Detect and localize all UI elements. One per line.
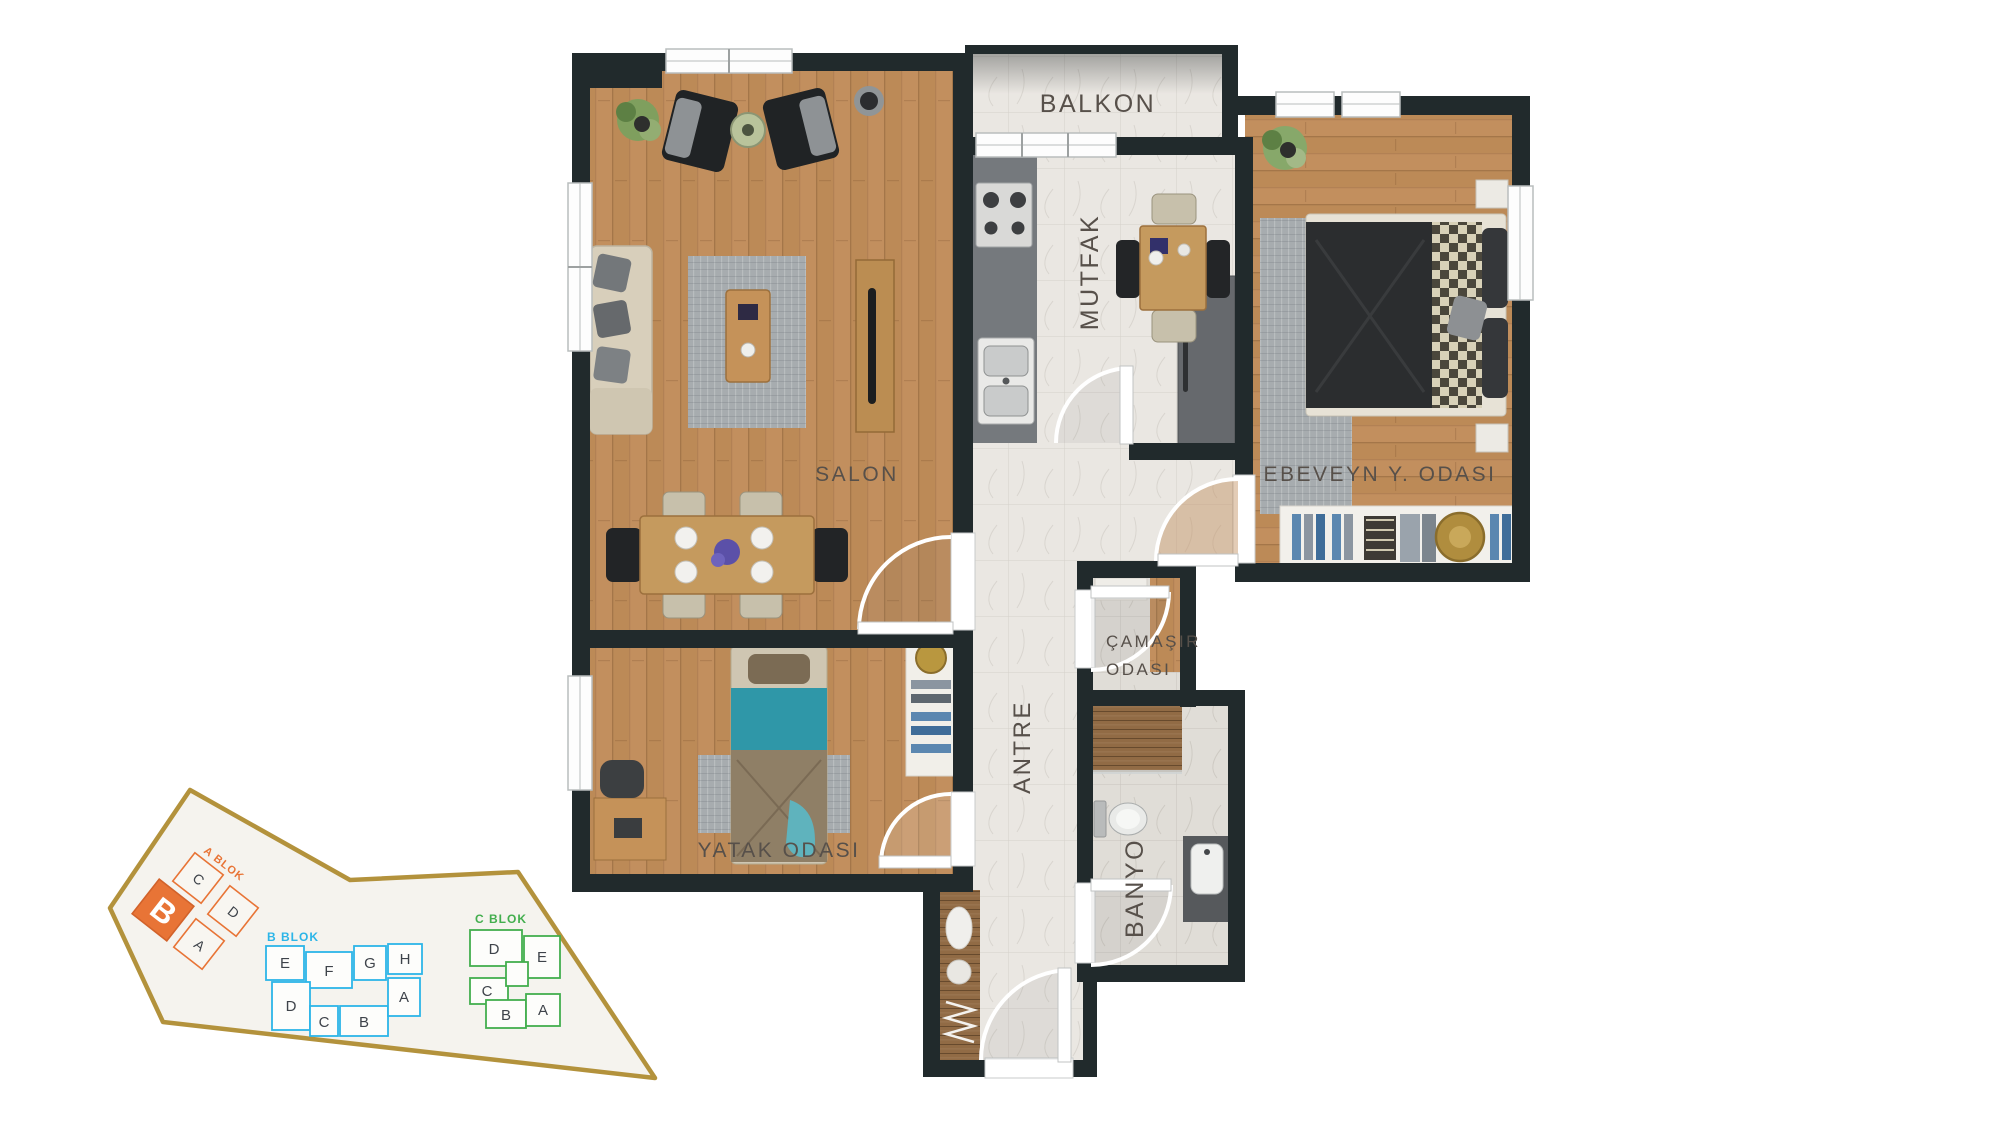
wall-segment (1222, 45, 1238, 145)
b-blok-unit-g-letter: G (364, 955, 376, 972)
wall-segment (923, 892, 940, 1077)
hanging-clothes (1304, 514, 1313, 560)
wall-segment (1129, 443, 1253, 460)
kitchen-chair-dark (1116, 240, 1140, 298)
c-blok-label: C BLOK (475, 912, 527, 926)
wall-segment (1077, 666, 1093, 692)
door-leaf (1120, 366, 1133, 444)
kitchen-table (1140, 226, 1206, 310)
laptop (614, 818, 642, 838)
room-label-mutfak: MUTFAK (1076, 214, 1104, 330)
door-leaf (879, 856, 951, 868)
pillow (1482, 228, 1508, 308)
window (568, 183, 592, 351)
door-leaf (1091, 586, 1169, 598)
door-leaf (858, 622, 953, 634)
wall-segment (965, 45, 1238, 54)
wall-segment (1077, 690, 1245, 706)
wall-segment (1077, 706, 1093, 885)
kitchen-chair (1152, 194, 1196, 224)
b-blok-unit-f-letter: F (324, 963, 333, 980)
bowl (947, 960, 971, 984)
single-bed (731, 646, 827, 864)
c-blok-unit-e-letter: E (537, 949, 547, 966)
entry-console (938, 890, 980, 1062)
toilet (1094, 801, 1147, 837)
side-table (731, 113, 765, 147)
window (568, 676, 592, 790)
room-label-camasir-1: ÇAMAŞIR (1106, 632, 1201, 651)
hanging-clothes (1292, 514, 1301, 560)
floor-plan-page: BALKON SALON EBEVEYN Y. ODASI YATAK ODAS… (0, 0, 2000, 1125)
floor-plan-canvas: BALKON SALON EBEVEYN Y. ODASI YATAK ODAS… (0, 0, 2000, 1125)
room-label-ebeveyn: EBEVEYN Y. ODASI (1264, 463, 1497, 486)
dining-chair-dark (606, 528, 642, 582)
nightstand (1476, 424, 1508, 452)
kitchen-sink (978, 338, 1034, 424)
c-blok-unit-c-letter: C (482, 983, 493, 1000)
hanging-clothes (1490, 514, 1499, 560)
b-blok-unit-c-letter: C (319, 1014, 330, 1031)
shower-glass (1093, 770, 1182, 774)
kitchen-chair-dark (1206, 240, 1230, 298)
plaid-garment (1364, 516, 1396, 560)
wall-segment (1083, 965, 1097, 1077)
dining-chair-dark (812, 528, 848, 582)
wall-segment (953, 53, 973, 535)
b-blok-unit-b-letter: B (359, 1014, 369, 1031)
desk-chair (600, 760, 644, 798)
desk (594, 798, 666, 860)
wall-segment (1253, 563, 1530, 582)
wall-mirror (854, 86, 884, 116)
hanging-clothes (911, 712, 951, 721)
c-blok-unit-a-letter: A (538, 1002, 548, 1019)
window (1508, 186, 1533, 300)
wall-segment (1235, 137, 1253, 477)
stove (976, 183, 1032, 247)
room-label-banyo: BANYO (1121, 838, 1149, 938)
door-leaf (1058, 968, 1071, 1062)
balkon-shadow (965, 52, 1235, 94)
window (666, 49, 792, 73)
hanging-clothes (911, 694, 951, 703)
wall-segment (923, 1060, 987, 1077)
nightstand (1476, 180, 1508, 208)
gray-garment (1422, 514, 1436, 562)
b-blok-label: B BLOK (267, 930, 319, 944)
hanging-clothes (1502, 514, 1511, 560)
teal-blanket (731, 688, 827, 750)
hanging-clothes (1332, 514, 1341, 560)
shower-deck (1093, 706, 1182, 772)
wall-segment (953, 628, 973, 794)
c-blok-unit-b-letter: B (501, 1007, 511, 1024)
door-leaf (1158, 554, 1238, 566)
room-label-balkon: BALKON (1040, 90, 1156, 118)
window (1276, 92, 1334, 117)
b-blok-unit-a-letter: A (399, 989, 409, 1006)
pillow (1482, 318, 1508, 398)
hanging-clothes (911, 744, 951, 753)
hanging-clothes (1316, 514, 1325, 560)
hanging-clothes (1344, 514, 1353, 560)
coffee-table (726, 290, 770, 382)
tv-unit (856, 260, 894, 432)
bedroom-wardrobe (1280, 506, 1514, 568)
hanging-clothes (911, 726, 951, 735)
kitchen-chair (1152, 310, 1196, 342)
pillow (748, 654, 810, 684)
room-label-camasir-2: ODASI (1106, 660, 1171, 679)
wall-segment (1228, 690, 1245, 982)
towel (946, 907, 972, 949)
b-blok-unit-e-letter: E (280, 955, 290, 972)
window (976, 133, 1116, 157)
vanity-sink (1183, 836, 1229, 922)
sofa (590, 246, 652, 434)
room-label-salon: SALON (815, 463, 899, 486)
b-blok-unit-h-letter: H (400, 951, 411, 968)
window (1342, 92, 1400, 117)
hanging-clothes (911, 680, 951, 689)
c-blok-unit-d-letter: D (489, 941, 500, 958)
wall-segment (1083, 965, 1245, 982)
yatak-wardrobe (906, 638, 956, 776)
c-blok-core (506, 962, 528, 986)
b-blok-unit-d-letter: D (286, 998, 297, 1015)
room-label-antre: ANTRE (1009, 700, 1036, 794)
gray-garment (1400, 514, 1420, 562)
wall-segment (1512, 96, 1530, 582)
wall-segment (572, 874, 972, 892)
double-bed (1306, 214, 1508, 416)
room-label-yatak: YATAK ODASI (698, 839, 861, 862)
